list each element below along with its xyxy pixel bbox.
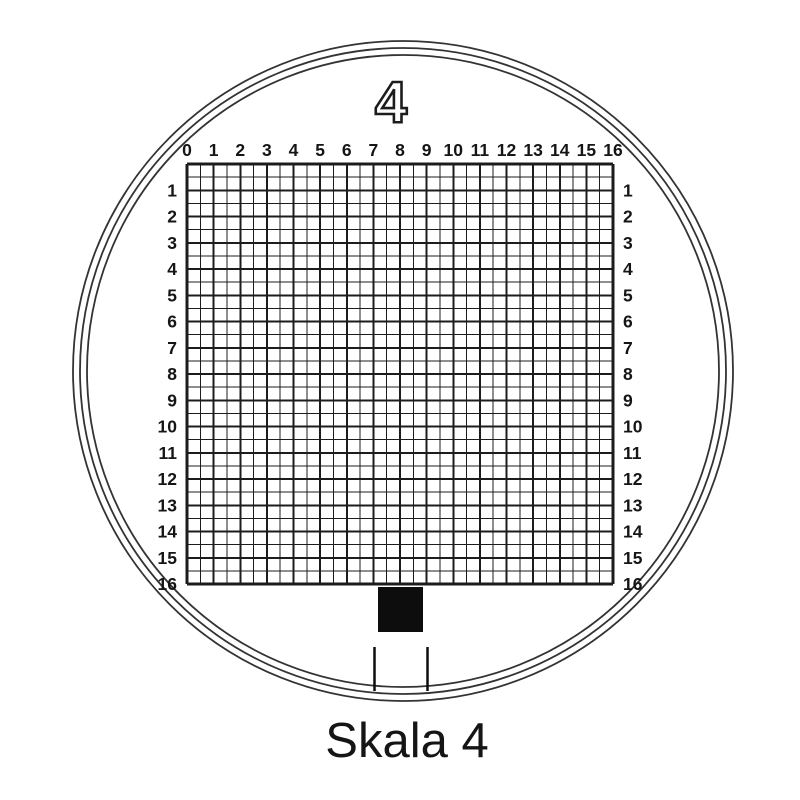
gauge-lines [375, 647, 428, 691]
right-axis-label: 4 [623, 259, 633, 279]
reticle-image: 4 012345678910111213141516 1234567891011… [0, 0, 800, 800]
left-axis-label: 15 [158, 548, 178, 568]
right-axis-label: 8 [623, 364, 633, 384]
left-axis-label: 4 [167, 259, 177, 279]
left-axis-label: 8 [167, 364, 177, 384]
right-axis-label: 5 [623, 285, 633, 305]
right-axis-label: 14 [623, 522, 643, 542]
left-axis-label: 3 [167, 233, 177, 253]
top-axis-labels: 012345678910111213141516 [182, 140, 623, 160]
left-axis-label: 9 [167, 390, 177, 410]
right-axis-label: 12 [623, 469, 643, 489]
top-axis-label: 14 [550, 140, 570, 160]
top-axis-label: 7 [369, 140, 379, 160]
left-axis-label: 13 [158, 495, 178, 515]
right-axis-label: 9 [623, 390, 633, 410]
scale-number: 4 [375, 70, 407, 135]
top-axis-label: 3 [262, 140, 272, 160]
right-axis-label: 16 [623, 574, 643, 594]
top-axis-label: 16 [603, 140, 623, 160]
top-axis-label: 15 [577, 140, 597, 160]
scale-caption: Skala 4 [325, 714, 488, 768]
left-axis-label: 6 [167, 312, 177, 332]
top-axis-label: 10 [444, 140, 464, 160]
reticle-svg: 4 012345678910111213141516 1234567891011… [0, 0, 800, 800]
left-axis-label: 12 [158, 469, 178, 489]
top-axis-label: 13 [523, 140, 543, 160]
right-axis-label: 7 [623, 338, 633, 358]
top-axis-label: 12 [497, 140, 517, 160]
left-axis-label: 1 [167, 180, 177, 200]
right-axis-label: 13 [623, 495, 643, 515]
top-axis-label: 4 [289, 140, 299, 160]
top-axis-label: 0 [182, 140, 192, 160]
left-axis-labels: 12345678910111213141516 [158, 180, 178, 594]
center-marker-square [378, 587, 423, 632]
left-axis-label: 14 [158, 522, 178, 542]
top-axis-label: 5 [315, 140, 325, 160]
right-axis-label: 2 [623, 207, 633, 227]
right-axis-label: 15 [623, 548, 643, 568]
top-axis-label: 2 [235, 140, 245, 160]
right-axis-labels: 12345678910111213141516 [623, 180, 643, 594]
left-axis-label: 5 [167, 285, 177, 305]
left-axis-label: 2 [167, 207, 177, 227]
top-axis-label: 1 [209, 140, 219, 160]
right-axis-label: 10 [623, 417, 643, 437]
top-axis-label: 8 [395, 140, 405, 160]
top-axis-label: 11 [471, 140, 490, 160]
top-axis-label: 6 [342, 140, 352, 160]
right-axis-label: 6 [623, 312, 633, 332]
left-axis-label: 7 [167, 338, 177, 358]
measurement-grid [187, 164, 613, 584]
left-axis-label: 10 [158, 417, 178, 437]
left-axis-label: 16 [158, 574, 178, 594]
right-axis-label: 1 [623, 180, 633, 200]
top-axis-label: 9 [422, 140, 432, 160]
left-axis-label: 11 [159, 443, 178, 463]
right-axis-label: 11 [623, 443, 642, 463]
right-axis-label: 3 [623, 233, 633, 253]
